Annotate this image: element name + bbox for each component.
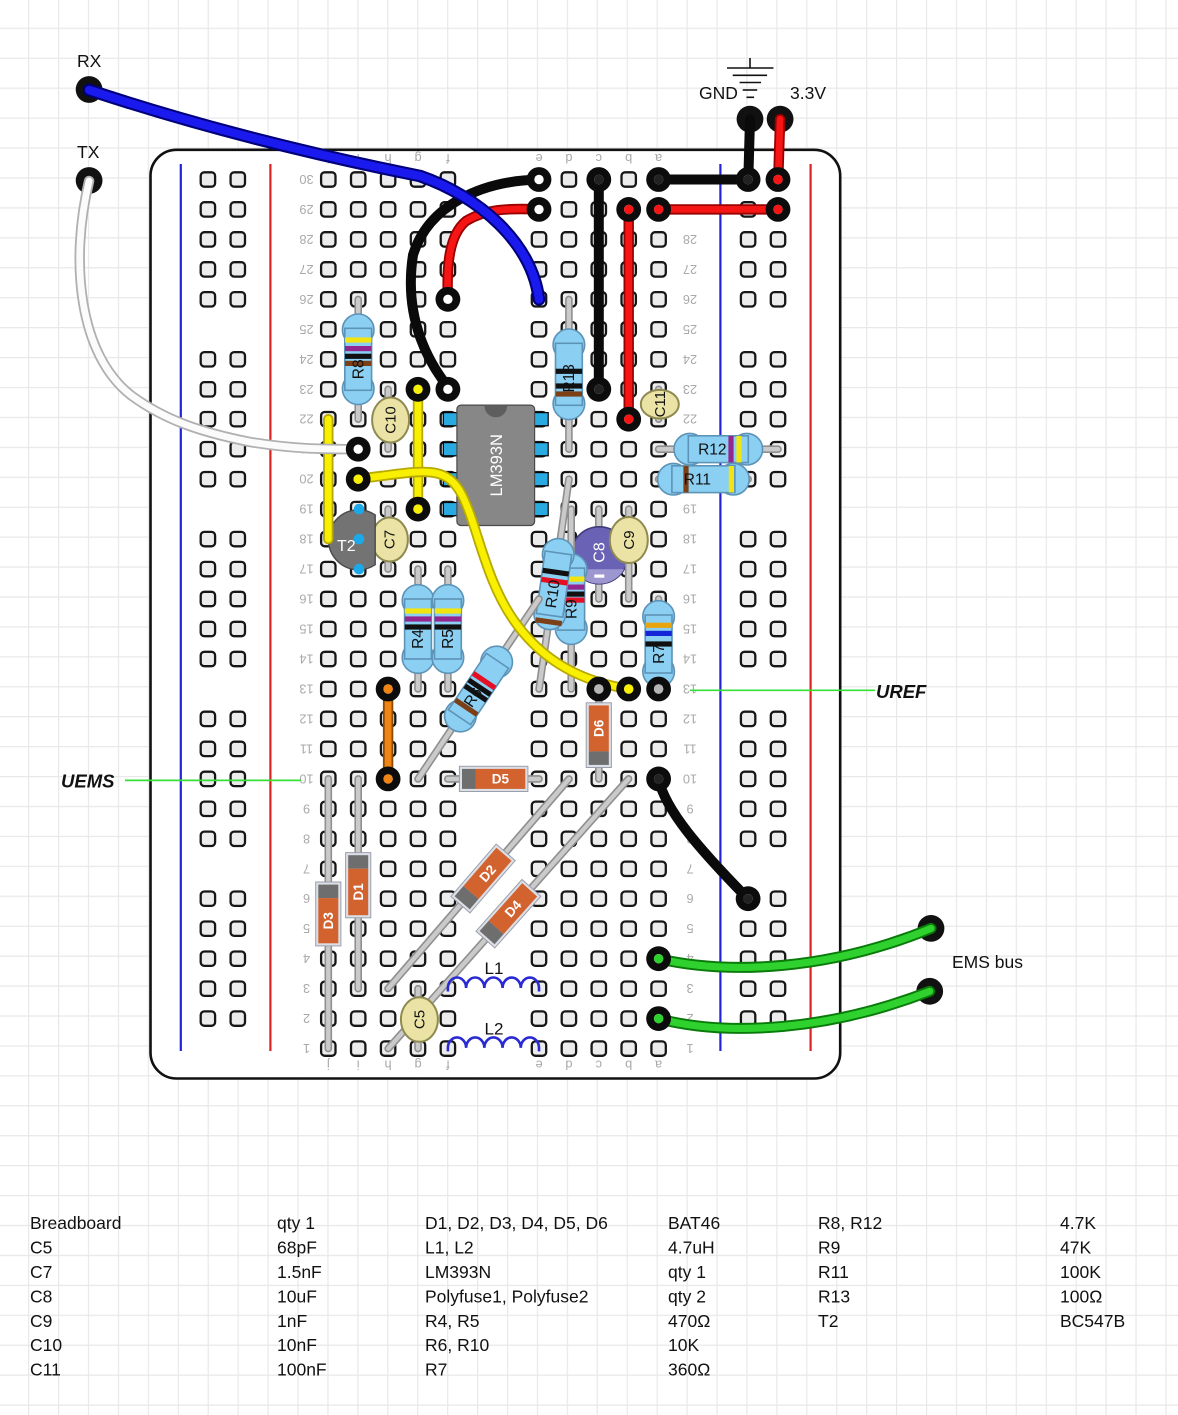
svg-text:22: 22	[683, 412, 697, 427]
svg-text:100K: 100K	[1060, 1262, 1101, 1282]
svg-text:g: g	[414, 151, 421, 166]
svg-text:27: 27	[683, 262, 697, 277]
svg-text:3.3V: 3.3V	[790, 83, 826, 103]
svg-text:R12: R12	[698, 441, 726, 458]
svg-text:C10: C10	[30, 1335, 62, 1355]
svg-text:D1, D2, D3, D4, D5, D6: D1, D2, D3, D4, D5, D6	[425, 1213, 608, 1233]
svg-text:12: 12	[683, 711, 697, 726]
svg-text:23: 23	[299, 382, 313, 397]
svg-text:9: 9	[303, 801, 310, 816]
svg-text:1: 1	[303, 1041, 310, 1056]
svg-text:360Ω: 360Ω	[668, 1360, 710, 1380]
svg-text:R6, R10: R6, R10	[425, 1335, 489, 1355]
svg-text:100nF: 100nF	[277, 1360, 327, 1380]
svg-text:19: 19	[299, 502, 313, 517]
svg-text:20: 20	[299, 472, 313, 487]
svg-text:d: d	[565, 1058, 572, 1073]
svg-text:18: 18	[683, 532, 697, 547]
svg-text:30: 30	[299, 172, 313, 187]
svg-text:26: 26	[683, 292, 697, 307]
svg-text:7: 7	[303, 861, 310, 876]
svg-text:f: f	[446, 151, 450, 166]
svg-text:UEMS: UEMS	[61, 771, 115, 792]
svg-text:j: j	[327, 1058, 331, 1073]
svg-text:12: 12	[299, 711, 313, 726]
svg-text:f: f	[446, 1058, 450, 1073]
svg-text:10nF: 10nF	[277, 1335, 317, 1355]
svg-text:25: 25	[683, 322, 697, 337]
svg-text:Breadboard: Breadboard	[30, 1213, 121, 1233]
svg-text:b: b	[625, 151, 632, 166]
svg-text:b: b	[625, 1058, 632, 1073]
svg-text:D6: D6	[592, 719, 607, 737]
svg-text:R13: R13	[818, 1286, 850, 1306]
svg-text:LM393N: LM393N	[488, 434, 506, 496]
svg-text:22: 22	[299, 412, 313, 427]
svg-text:Polyfuse1, Polyfuse2: Polyfuse1, Polyfuse2	[425, 1286, 588, 1306]
svg-text:R7: R7	[651, 644, 668, 664]
svg-text:RX: RX	[77, 51, 102, 71]
svg-text:L1, L2: L1, L2	[425, 1238, 474, 1258]
svg-text:26: 26	[299, 292, 313, 307]
svg-text:h: h	[385, 1058, 392, 1073]
svg-text:28: 28	[299, 232, 313, 247]
svg-text:24: 24	[299, 352, 313, 367]
svg-text:470Ω: 470Ω	[668, 1311, 710, 1331]
svg-text:g: g	[414, 1058, 421, 1073]
svg-text:R11: R11	[818, 1262, 849, 1282]
svg-text:c: c	[595, 1058, 602, 1073]
svg-text:D5: D5	[492, 772, 510, 787]
svg-text:29: 29	[299, 202, 313, 217]
svg-text:R4, R5: R4, R5	[425, 1311, 479, 1331]
svg-text:D1: D1	[351, 883, 366, 901]
svg-text:16: 16	[683, 592, 697, 607]
svg-text:c: c	[595, 151, 602, 166]
svg-text:4: 4	[303, 951, 310, 966]
svg-text:6: 6	[686, 891, 693, 906]
svg-text:R8: R8	[350, 359, 367, 379]
svg-text:11: 11	[683, 741, 696, 756]
svg-text:28: 28	[683, 232, 697, 247]
svg-text:R11: R11	[684, 471, 711, 488]
svg-text:T2: T2	[818, 1311, 838, 1331]
svg-text:LM393N: LM393N	[425, 1262, 491, 1282]
svg-text:qty 2: qty 2	[668, 1286, 706, 1306]
svg-text:C9: C9	[621, 530, 638, 549]
svg-text:3: 3	[686, 981, 693, 996]
svg-text:C5: C5	[30, 1238, 52, 1258]
svg-text:13: 13	[299, 682, 313, 697]
svg-text:10: 10	[683, 771, 697, 786]
svg-text:C7: C7	[30, 1262, 52, 1282]
svg-text:R8, R12: R8, R12	[818, 1213, 882, 1233]
svg-text:14: 14	[299, 652, 313, 667]
svg-text:C8: C8	[591, 542, 608, 563]
svg-text:a: a	[654, 151, 662, 166]
svg-text:L1: L1	[485, 959, 504, 978]
svg-text:EMS bus: EMS bus	[952, 952, 1023, 972]
svg-text:4.7uH: 4.7uH	[668, 1238, 715, 1258]
svg-text:i: i	[357, 1058, 360, 1073]
svg-text:C7: C7	[382, 530, 399, 549]
svg-text:27: 27	[299, 262, 313, 277]
svg-text:6: 6	[303, 891, 310, 906]
svg-text:C9: C9	[30, 1311, 52, 1331]
svg-text:BAT46: BAT46	[668, 1213, 720, 1233]
svg-text:5: 5	[686, 921, 693, 936]
svg-text:10K: 10K	[668, 1335, 699, 1355]
svg-text:C11: C11	[30, 1360, 61, 1380]
svg-text:10: 10	[299, 771, 313, 786]
svg-text:25: 25	[299, 322, 313, 337]
svg-text:C8: C8	[30, 1286, 52, 1306]
svg-text:BC547B: BC547B	[1060, 1311, 1125, 1331]
svg-text:R9: R9	[818, 1238, 840, 1258]
svg-text:17: 17	[299, 562, 313, 577]
svg-text:24: 24	[683, 352, 697, 367]
svg-text:15: 15	[683, 622, 697, 637]
svg-text:C10: C10	[383, 406, 400, 434]
svg-text:UREF: UREF	[876, 681, 927, 702]
svg-text:e: e	[535, 151, 542, 166]
svg-text:16: 16	[299, 592, 313, 607]
svg-text:R4: R4	[410, 629, 427, 649]
svg-text:7: 7	[686, 861, 693, 876]
svg-text:TX: TX	[77, 142, 100, 162]
svg-text:R13: R13	[561, 364, 578, 392]
svg-text:1.5nF: 1.5nF	[277, 1262, 322, 1282]
svg-text:18: 18	[299, 532, 313, 547]
svg-text:GND: GND	[699, 83, 738, 103]
svg-text:13: 13	[683, 682, 697, 697]
svg-text:L2: L2	[485, 1020, 504, 1039]
svg-text:11: 11	[300, 741, 313, 756]
svg-text:qty 1: qty 1	[277, 1213, 315, 1233]
svg-text:T2: T2	[337, 538, 356, 555]
svg-text:15: 15	[299, 622, 313, 637]
svg-text:C11: C11	[652, 391, 669, 417]
svg-text:d: d	[565, 151, 572, 166]
svg-text:qty 1: qty 1	[668, 1262, 706, 1282]
svg-text:14: 14	[683, 652, 697, 667]
svg-text:a: a	[654, 1058, 662, 1073]
svg-text:D3: D3	[321, 912, 336, 930]
svg-text:3: 3	[303, 981, 310, 996]
svg-text:23: 23	[683, 382, 697, 397]
svg-text:9: 9	[686, 801, 693, 816]
svg-text:8: 8	[303, 831, 310, 846]
svg-text:1: 1	[686, 1041, 693, 1056]
svg-text:47K: 47K	[1060, 1238, 1091, 1258]
svg-text:19: 19	[683, 502, 697, 517]
svg-text:R7: R7	[425, 1360, 447, 1380]
svg-text:10uF: 10uF	[277, 1286, 317, 1306]
svg-text:100Ω: 100Ω	[1060, 1286, 1102, 1306]
svg-text:e: e	[535, 1058, 542, 1073]
svg-text:2: 2	[303, 1011, 310, 1026]
svg-text:C5: C5	[411, 1010, 428, 1029]
svg-text:1nF: 1nF	[277, 1311, 307, 1331]
svg-text:4.7K: 4.7K	[1060, 1213, 1096, 1233]
svg-text:17: 17	[683, 562, 697, 577]
svg-text:68pF: 68pF	[277, 1238, 317, 1258]
svg-text:R5: R5	[440, 629, 457, 649]
svg-text:5: 5	[303, 921, 310, 936]
